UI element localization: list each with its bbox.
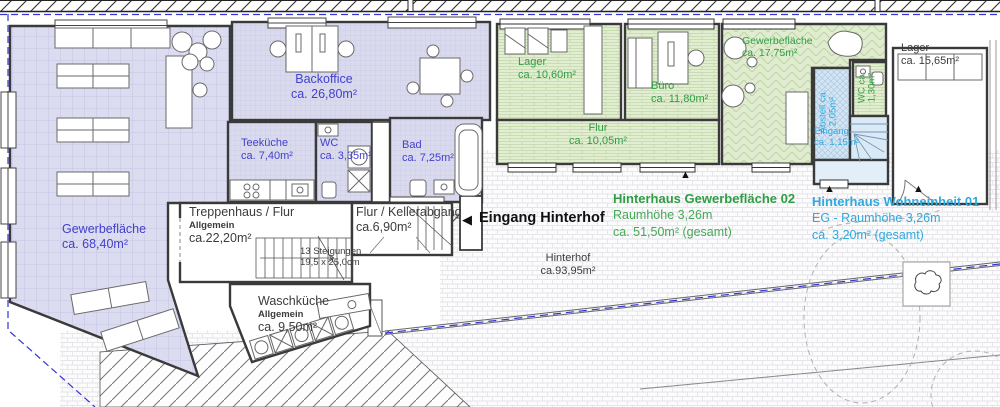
counter [786,92,808,144]
room-area: ca. 9,50m² [258,320,329,335]
room-label-kellerabgang: Flur / Kellerabgang ca.6,90m² [356,205,462,235]
room-label-buero: Büro ca. 11,80m² [651,80,708,106]
stair-note-line2: 19,5 x 25,0cm [300,257,361,268]
room-name: Lager [518,56,576,69]
floor-plan: Gewerbefläche ca. 68,40m² Backoffice ca.… [0,0,1000,407]
room-area: ca. 11,80m² [651,93,708,106]
room-area: ca. 10,60m² [518,69,576,82]
annotation-line2: ca. 3,20m² (gesamt) [812,227,979,244]
room-area: ca.6,90m² [356,220,462,235]
annotation-line2: ca. 51,50m² (gesamt) [613,224,795,241]
room-name: WC [320,137,372,150]
room-area: ca. 68,40m² [62,237,146,252]
kitchen-counter [230,180,314,200]
room-area: ca. 7,40m² [241,150,293,163]
shelving-unit [57,118,129,142]
shelving-unit [57,172,129,196]
room-name: Treppenhaus / Flur [189,205,294,220]
annotation-line1: Raumhöhe 3,26m [613,207,795,224]
room-name: Eingang [814,126,859,137]
room-name: Flur [556,122,640,135]
room-name: Büro [651,80,708,93]
room-label-wc-335: WC ca. 3,35m² [320,137,372,163]
room-name: Hinterhof [528,252,608,265]
room-label-backoffice: Backoffice ca. 26,80m² [272,72,376,102]
room-category: Allgemein [189,220,294,231]
annotation-title: Hinterhaus Gewerbefläche 02 [613,190,795,207]
entrance-label: Eingang Hinterhof [479,210,605,226]
room-name: Bad [402,139,454,152]
room-area: ca. 1,15m² [814,137,859,148]
room-name: WC [857,87,868,103]
room-category: Allgemein [258,309,329,320]
room-area: ca. 15,65m² [901,55,959,68]
room-label-gewerbeflaeche-68: Gewerbefläche ca. 68,40m² [62,222,146,252]
room-label-waschkueche: Waschküche Allgemein ca. 9,50m² [258,294,329,335]
room-name: Backoffice [272,72,376,87]
room-name: Gewerbefläche [62,222,146,237]
room-label-eingang: Eingang ca. 1,15m² [814,126,859,148]
entrance-marker-icon: ▲ [824,184,835,195]
stacked-chairs [505,28,567,54]
front-building-band [0,0,1000,15]
room-area: ca. 3,35m² [320,150,372,163]
room-name: Gewerbefläche [742,35,813,47]
tall-cabinet [584,26,602,114]
room-area: ca. 7,25m² [402,152,454,165]
room-area: ca. 10,05m² [556,135,640,148]
annotation-wohneinheit-01: Hinterhaus Wohneinheit 01 EG - Raumhöhe … [812,193,979,243]
couch [628,38,652,88]
room-area: ca.93,95m² [528,265,608,278]
room-label-lager-1060: Lager ca. 10,60m² [518,56,576,82]
room-label-hinterhof: Hinterhof ca.93,95m² [528,252,608,278]
entrance-marker-icon: ▲ [680,170,691,181]
entrance-arrow-icon: ◀ [462,213,472,226]
stair-note-line1: 13 Steigungen [300,246,361,257]
entrance-marker-icon: ▲ [913,184,924,195]
annotation-line1: EG - Raumhöhe 3,26m [812,210,979,227]
room-label-lager-1565: Lager ca. 15,65m² [901,42,959,68]
room-label-teekueche: Teeküche ca. 7,40m² [241,137,293,163]
shelving-unit [57,64,129,88]
planting-bed [903,262,950,306]
room-label-bad: Bad ca. 7,25m² [402,139,454,165]
room-label-wc-130: WC ca. 1,30m² [858,57,879,117]
room-name: Lager [901,42,959,55]
room-area: ca.22,20m² [189,231,294,246]
room-name: Teeküche [241,137,293,150]
room-label-treppenhaus: Treppenhaus / Flur Allgemein ca.22,20m² [189,205,294,246]
room-label-flur: Flur ca. 10,05m² [556,122,640,148]
room-name: Flur / Kellerabgang [356,205,462,220]
annotation-gewerbe-02: Hinterhaus Gewerbefläche 02 Raumhöhe 3,2… [613,190,795,240]
room-area: ca. 26,80m² [272,87,376,102]
stair-note: 13 Steigungen 19,5 x 25,0cm [300,246,361,268]
room-label-gewerbeflaeche-1775: Gewerbefläche ca. 17,75m² [742,35,813,60]
room-area: ca. 17,75m² [742,47,813,59]
room-name: Waschküche [258,294,329,309]
annotation-title: Hinterhaus Wohneinheit 01 [812,193,979,210]
